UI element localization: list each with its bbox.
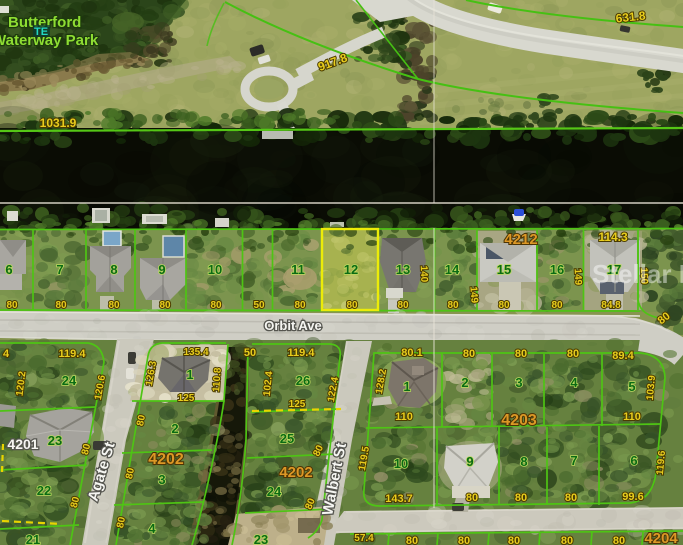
svg-text:114.3: 114.3	[598, 230, 628, 244]
svg-text:23: 23	[254, 532, 268, 545]
svg-text:6: 6	[5, 262, 12, 277]
svg-text:140: 140	[418, 265, 430, 282]
svg-text:4201: 4201	[7, 436, 38, 452]
svg-text:80: 80	[561, 535, 573, 545]
svg-text:80: 80	[498, 300, 510, 311]
svg-text:80: 80	[6, 300, 18, 311]
svg-text:80: 80	[55, 300, 67, 311]
svg-text:80: 80	[346, 300, 358, 311]
svg-text:80: 80	[551, 300, 563, 311]
svg-text:16: 16	[550, 262, 564, 277]
svg-text:1: 1	[186, 367, 193, 382]
svg-text:14: 14	[445, 262, 460, 277]
svg-text:50: 50	[253, 300, 265, 311]
svg-text:80: 80	[397, 300, 409, 311]
svg-text:3: 3	[158, 472, 165, 487]
svg-text:7: 7	[570, 453, 577, 468]
svg-text:4: 4	[3, 348, 10, 360]
svg-text:1: 1	[403, 379, 410, 394]
svg-text:15: 15	[497, 262, 511, 277]
svg-text:22: 22	[37, 483, 51, 498]
svg-text:10: 10	[208, 262, 222, 277]
svg-text:10: 10	[394, 456, 408, 471]
svg-text:80: 80	[565, 492, 577, 504]
svg-text:135.4: 135.4	[183, 347, 208, 358]
svg-text:110: 110	[395, 411, 413, 423]
svg-text:143.7: 143.7	[385, 493, 413, 505]
svg-text:9: 9	[466, 454, 473, 469]
svg-text:9: 9	[158, 262, 165, 277]
svg-text:21: 21	[26, 532, 40, 545]
svg-text:4202: 4202	[148, 451, 184, 468]
svg-text:99.6: 99.6	[622, 491, 643, 503]
svg-text:125: 125	[289, 399, 306, 410]
svg-text:80: 80	[515, 492, 527, 504]
svg-text:26: 26	[296, 373, 310, 388]
svg-text:8: 8	[110, 262, 117, 277]
svg-text:103.9: 103.9	[645, 374, 658, 400]
svg-text:4204: 4204	[644, 530, 678, 545]
svg-text:80: 80	[466, 492, 478, 504]
svg-text:125: 125	[178, 393, 195, 404]
svg-text:84.8: 84.8	[601, 300, 621, 311]
svg-text:80: 80	[447, 300, 459, 311]
svg-text:80.1: 80.1	[401, 347, 422, 359]
svg-text:119.4: 119.4	[59, 348, 87, 360]
svg-text:149: 149	[467, 286, 479, 304]
svg-text:4212: 4212	[504, 231, 537, 248]
svg-text:4203: 4203	[501, 412, 537, 429]
svg-text:5: 5	[628, 379, 635, 394]
svg-text:89.4: 89.4	[612, 350, 634, 362]
svg-text:2: 2	[171, 421, 178, 436]
svg-text:80: 80	[458, 535, 470, 545]
svg-text:23: 23	[48, 433, 62, 448]
svg-text:11: 11	[291, 262, 305, 277]
svg-text:80: 80	[108, 300, 120, 311]
svg-text:80: 80	[159, 300, 171, 311]
svg-text:3: 3	[515, 375, 522, 390]
svg-text:1031.9: 1031.9	[40, 116, 77, 130]
svg-text:8: 8	[520, 454, 527, 469]
svg-text:4202: 4202	[279, 464, 312, 481]
svg-text:80: 80	[463, 348, 475, 360]
svg-text:119.6: 119.6	[655, 450, 668, 476]
svg-text:4: 4	[148, 521, 156, 536]
svg-text:80: 80	[567, 348, 579, 360]
svg-text:80: 80	[406, 535, 418, 545]
svg-text:80: 80	[515, 348, 527, 360]
svg-text:149: 149	[572, 268, 584, 286]
svg-text:24: 24	[267, 484, 282, 499]
svg-text:24: 24	[62, 373, 77, 388]
svg-text:TE: TE	[34, 26, 48, 38]
svg-text:50: 50	[244, 347, 256, 359]
svg-text:119.4: 119.4	[288, 347, 316, 359]
svg-text:12: 12	[344, 262, 358, 277]
svg-text:13: 13	[396, 262, 410, 277]
svg-text:80: 80	[508, 535, 520, 545]
svg-text:Stellar MLS: Stellar MLS	[592, 259, 683, 289]
svg-text:110.8: 110.8	[211, 367, 224, 393]
svg-text:4: 4	[570, 375, 578, 390]
svg-text:80: 80	[294, 300, 306, 311]
svg-text:2: 2	[461, 375, 468, 390]
svg-text:6: 6	[630, 453, 637, 468]
svg-text:80: 80	[210, 300, 222, 311]
svg-text:110: 110	[623, 411, 641, 423]
svg-text:25: 25	[280, 431, 294, 446]
svg-text:Orbit Ave: Orbit Ave	[264, 318, 322, 333]
svg-text:7: 7	[56, 262, 63, 277]
svg-text:80: 80	[613, 535, 625, 545]
svg-text:57.4: 57.4	[354, 533, 374, 544]
